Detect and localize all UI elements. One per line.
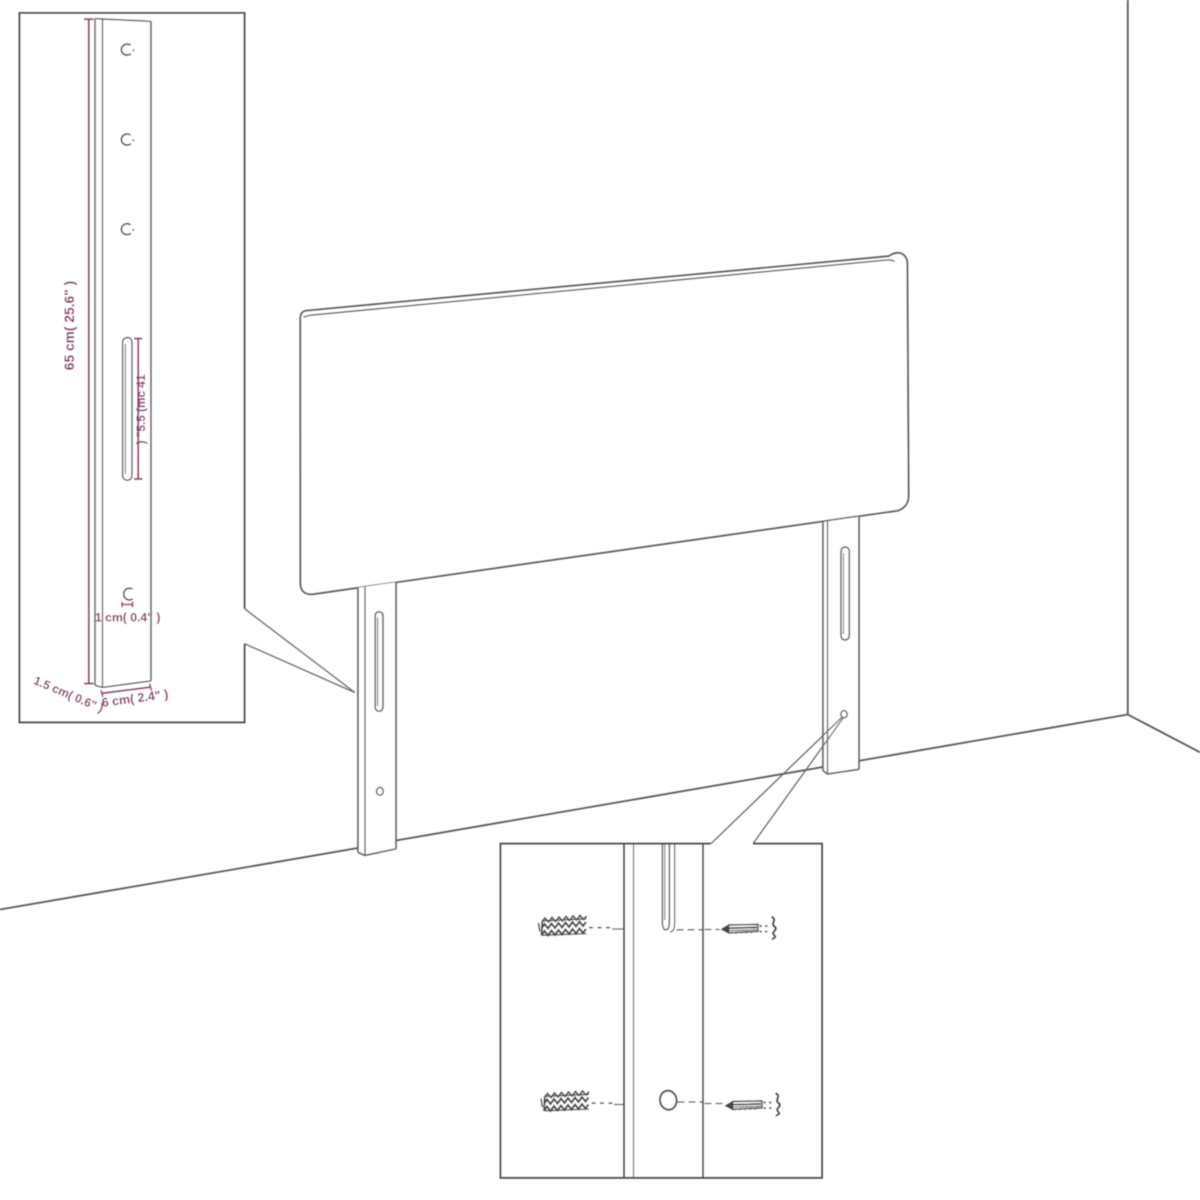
- svg-text:65 cm( 25.6" ): 65 cm( 25.6" ): [62, 281, 77, 370]
- svg-text:) "5.5 (mc 41: ) "5.5 (mc 41: [134, 374, 148, 444]
- svg-text:1 cm( 0.4" ): 1 cm( 0.4" ): [95, 611, 160, 625]
